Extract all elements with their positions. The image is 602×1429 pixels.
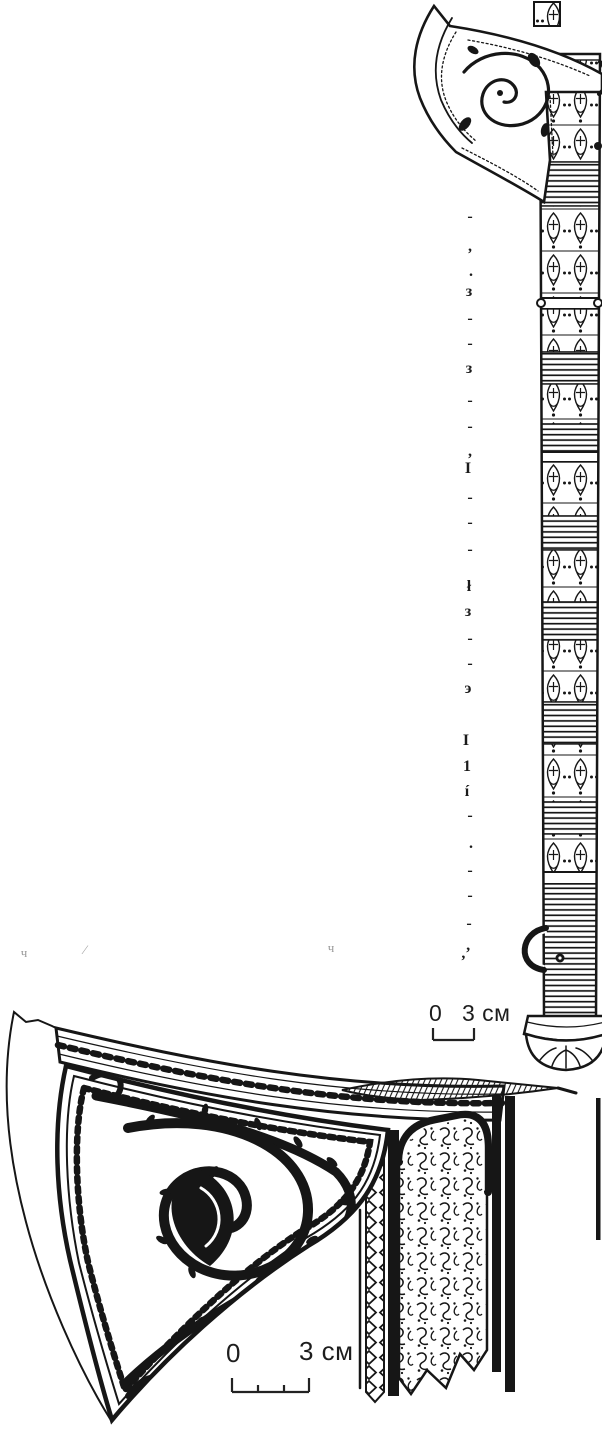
socket-back-edge xyxy=(596,1098,601,1240)
pommel xyxy=(524,1016,602,1070)
axe-haft xyxy=(536,54,602,1018)
socket-fragment xyxy=(360,1096,601,1402)
rivet xyxy=(556,954,565,963)
haft-top-cap xyxy=(534,2,560,26)
axe-head-detail-figure xyxy=(7,1012,601,1422)
axe-illustrations xyxy=(0,0,602,1429)
socket-engraved-panel xyxy=(399,1117,487,1394)
scale-bar-bottom xyxy=(232,1378,309,1392)
ornamented-cheek xyxy=(57,1066,388,1420)
butt-stud xyxy=(594,142,602,150)
scale-bar-top xyxy=(433,1028,474,1040)
full-axe-figure xyxy=(414,2,602,1070)
scanned-figure-page: 0 3 см 0 3 см -,.з--з--,I---łз--эI1í-.--… xyxy=(0,0,602,1429)
